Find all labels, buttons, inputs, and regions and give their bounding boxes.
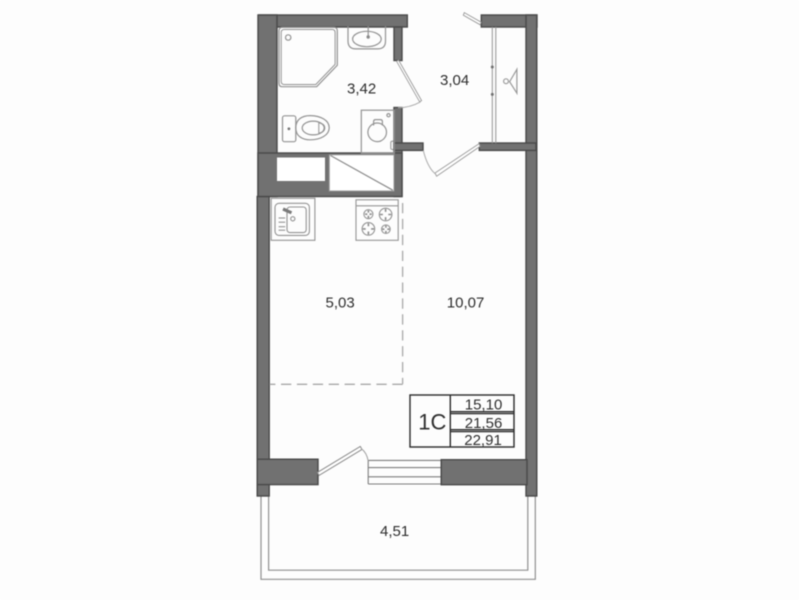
svg-text:4,51: 4,51 [380,523,409,540]
svg-text:22,91: 22,91 [464,432,502,449]
svg-text:1C: 1C [418,409,446,434]
svg-text:3,04: 3,04 [440,72,469,89]
svg-text:3,42: 3,42 [347,80,376,97]
svg-text:15,10: 15,10 [465,397,503,414]
svg-text:10,07: 10,07 [447,294,485,311]
svg-text:5,03: 5,03 [326,294,355,311]
svg-text:21,56: 21,56 [465,415,503,432]
